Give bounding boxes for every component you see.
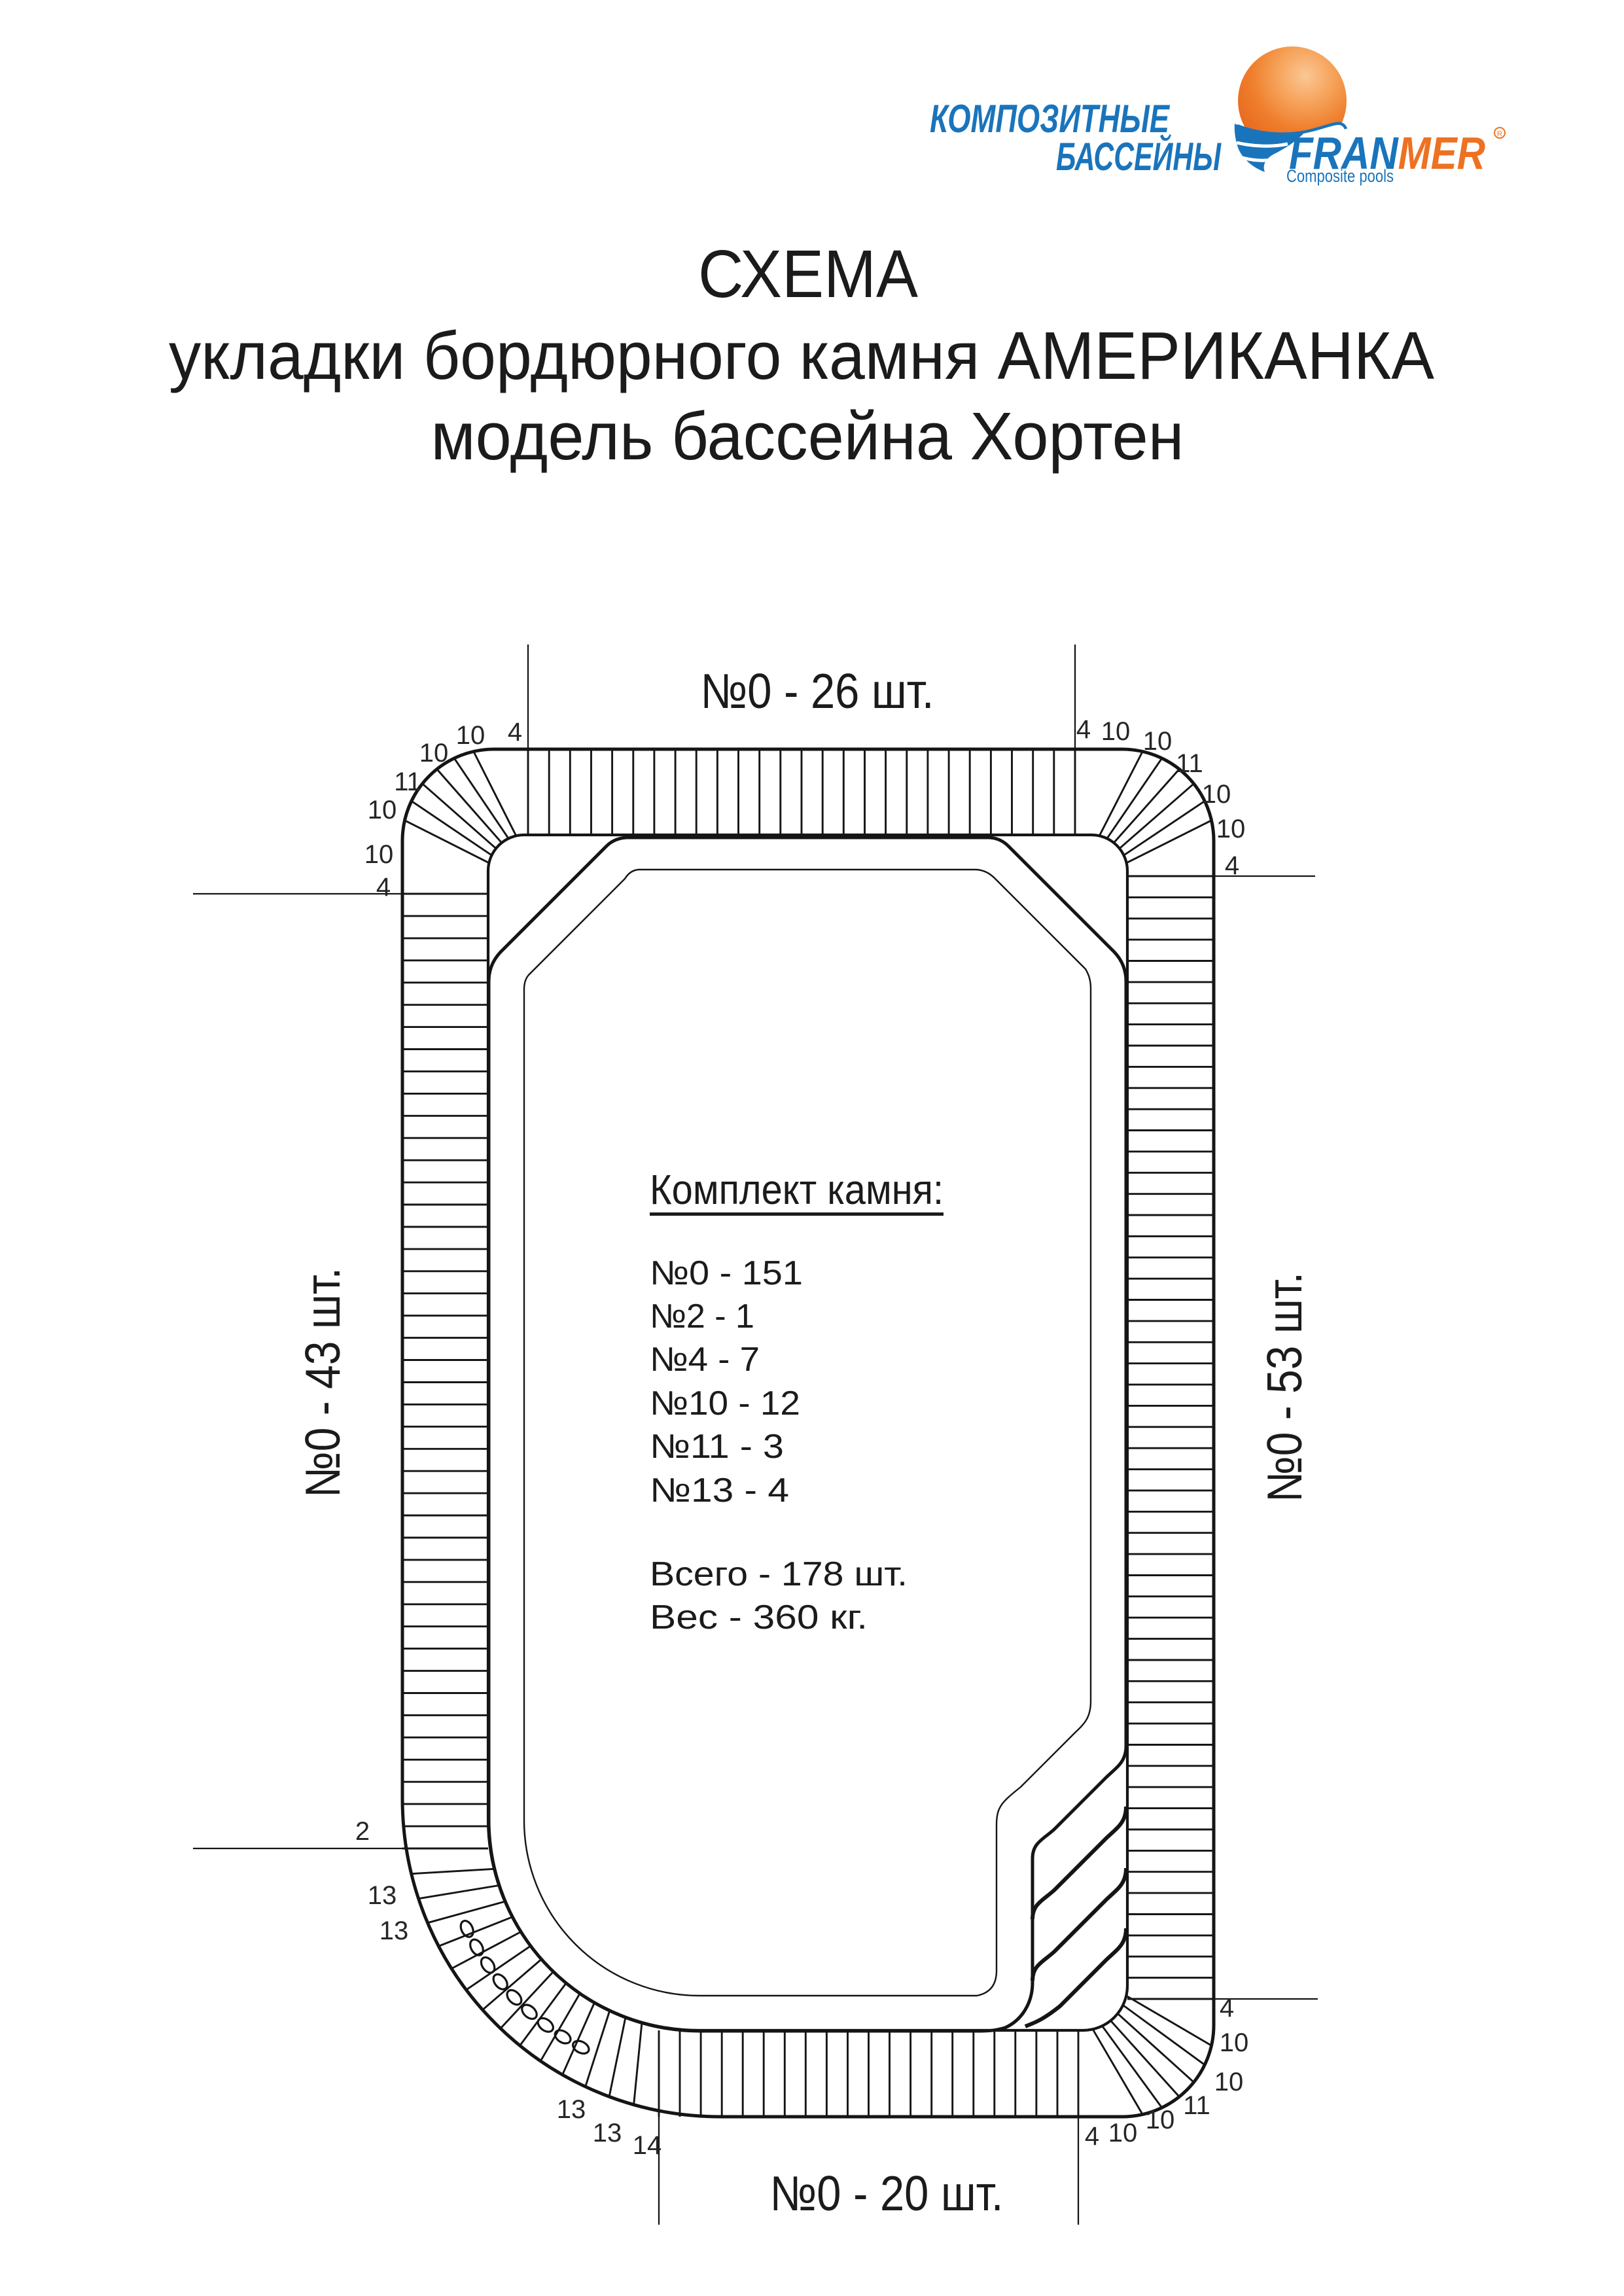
svg-text:10: 10 xyxy=(1146,2106,1175,2134)
svg-text:10: 10 xyxy=(364,840,394,869)
svg-text:№13 - 4: №13 - 4 xyxy=(650,1472,789,1510)
svg-text:4: 4 xyxy=(1076,715,1091,744)
svg-text:2: 2 xyxy=(355,1817,370,1846)
svg-text:10: 10 xyxy=(1220,2028,1249,2057)
svg-text:№0 - 43 шт.: №0 - 43 шт. xyxy=(295,1267,350,1498)
svg-text:Вес - 360 кг.: Вес - 360 кг. xyxy=(650,1598,868,1636)
svg-text:Всего - 178 шт.: Всего - 178 шт. xyxy=(650,1555,908,1593)
svg-text:Комплект камня:: Комплект камня: xyxy=(650,1166,944,1213)
svg-text:№0 - 20 шт.: №0 - 20 шт. xyxy=(770,2166,1004,2221)
svg-text:4: 4 xyxy=(376,873,391,902)
svg-text:13: 13 xyxy=(380,1916,409,1945)
svg-text:4: 4 xyxy=(1220,1994,1234,2022)
svg-text:№10 - 12: №10 - 12 xyxy=(650,1385,800,1422)
svg-text:R: R xyxy=(1497,130,1502,138)
svg-text:10: 10 xyxy=(1202,780,1231,809)
svg-text:13: 13 xyxy=(593,2119,622,2147)
svg-text:11: 11 xyxy=(394,768,421,796)
svg-text:10: 10 xyxy=(368,796,397,824)
svg-text:10: 10 xyxy=(1214,2068,1244,2096)
svg-text:№11 - 3: №11 - 3 xyxy=(650,1428,784,1466)
svg-text:14: 14 xyxy=(633,2131,662,2160)
svg-text:11: 11 xyxy=(1176,749,1203,778)
svg-text:10: 10 xyxy=(1108,2119,1138,2147)
svg-text:13: 13 xyxy=(557,2095,586,2124)
svg-text:Composite pools: Composite pools xyxy=(1286,166,1394,186)
svg-text:укладки бордюрного камня АМЕРИ: укладки бордюрного камня АМЕРИКАНКА xyxy=(169,318,1434,393)
svg-text:10: 10 xyxy=(1216,815,1246,843)
svg-text:10: 10 xyxy=(1101,717,1131,746)
svg-text:10: 10 xyxy=(1143,727,1173,756)
svg-text:№2 - 1: №2 - 1 xyxy=(650,1298,754,1335)
svg-text:№0 - 26 шт.: №0 - 26 шт. xyxy=(701,663,934,718)
svg-text:модель бассейна Хортен: модель бассейна Хортен xyxy=(431,398,1184,474)
svg-text:4: 4 xyxy=(508,718,522,747)
svg-text:№0 - 151: №0 - 151 xyxy=(650,1254,803,1292)
svg-text:КОМПОЗИТНЫЕ: КОМПОЗИТНЫЕ xyxy=(930,97,1170,141)
svg-text:4: 4 xyxy=(1085,2122,1099,2151)
svg-text:БАССЕЙНЫ: БАССЕЙНЫ xyxy=(1056,134,1222,179)
svg-text:СХЕМА: СХЕМА xyxy=(698,236,918,311)
svg-text:4: 4 xyxy=(1225,851,1239,880)
svg-text:№4 - 7: №4 - 7 xyxy=(650,1341,760,1379)
svg-text:13: 13 xyxy=(368,1881,397,1910)
svg-text:11: 11 xyxy=(1183,2091,1210,2120)
svg-text:№0 - 53 шт.: №0 - 53 шт. xyxy=(1257,1272,1312,1502)
svg-text:10: 10 xyxy=(456,721,485,750)
svg-text:10: 10 xyxy=(419,739,449,768)
